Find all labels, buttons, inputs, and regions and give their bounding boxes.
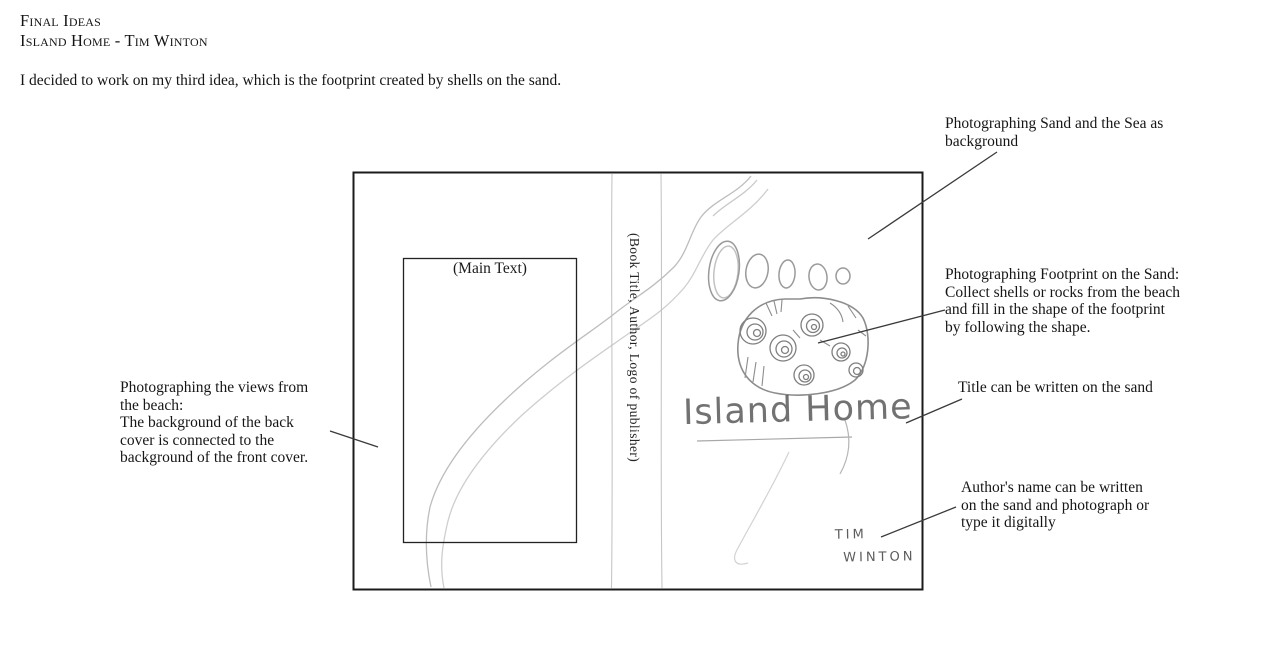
- handwritten-author-name: TIM WINTON: [835, 522, 916, 569]
- handwritten-author-line2: WINTON: [843, 545, 916, 569]
- annotation-line: Author's name can be written: [961, 479, 1149, 497]
- annotation-line: The background of the back: [120, 414, 308, 432]
- annotation-line: Collect shells or rocks from the beach: [945, 284, 1180, 302]
- spine-label: (Book Title, Author, Logo of publisher): [626, 233, 642, 523]
- annotation-line: by following the shape.: [945, 319, 1180, 337]
- intro-text: I decided to work on my third idea, whic…: [20, 72, 561, 90]
- handwritten-author-line1: TIM: [835, 522, 916, 546]
- heel-sketch: [697, 420, 852, 564]
- shell-spirals: [740, 314, 863, 385]
- page-title-line1: Final Ideas: [20, 11, 208, 31]
- annotation-line: and fill in the shape of the footprint: [945, 301, 1180, 319]
- annotation-line: type it digitally: [961, 514, 1149, 532]
- annotation-line: the beach:: [120, 397, 308, 415]
- main-text-label: (Main Text): [404, 260, 576, 278]
- annotation-line: background of the front cover.: [120, 449, 308, 467]
- annotation-line: Title can be written on the sand: [958, 379, 1153, 397]
- annotation-line: background: [945, 133, 1163, 151]
- annotation-line: Photographing the views from: [120, 379, 308, 397]
- annotation-sand-sea: Photographing Sand and the Sea as backgr…: [945, 115, 1163, 150]
- shell-texture: [745, 300, 866, 386]
- page-title-line2: Island Home - Tim Winton: [20, 31, 208, 51]
- footprint-pad: [738, 298, 868, 395]
- leader-line-sand-sea: [868, 152, 997, 239]
- page-header: Final Ideas Island Home - Tim Winton: [20, 11, 208, 51]
- leader-line-footprint: [818, 310, 945, 343]
- shoreline-sketch: [426, 176, 768, 588]
- footprint-toes: [705, 239, 850, 303]
- annotation-line: on the sand and photograph or: [961, 497, 1149, 515]
- main-text-box: [404, 259, 577, 543]
- annotation-line: cover is connected to the: [120, 432, 308, 450]
- design-journal-page: Final Ideas Island Home - Tim Winton I d…: [0, 0, 1268, 648]
- annotation-author-note: Author's name can be written on the sand…: [961, 479, 1149, 532]
- annotation-title-note: Title can be written on the sand: [958, 379, 1153, 397]
- annotation-line: Photographing Footprint on the Sand:: [945, 266, 1180, 284]
- annotation-line: Photographing Sand and the Sea as: [945, 115, 1163, 133]
- annotation-views-note: Photographing the views from the beach: …: [120, 379, 308, 467]
- leader-lines: [330, 152, 997, 537]
- handwritten-book-title: Island Home: [683, 387, 924, 433]
- annotation-footprint: Photographing Footprint on the Sand: Col…: [945, 266, 1180, 336]
